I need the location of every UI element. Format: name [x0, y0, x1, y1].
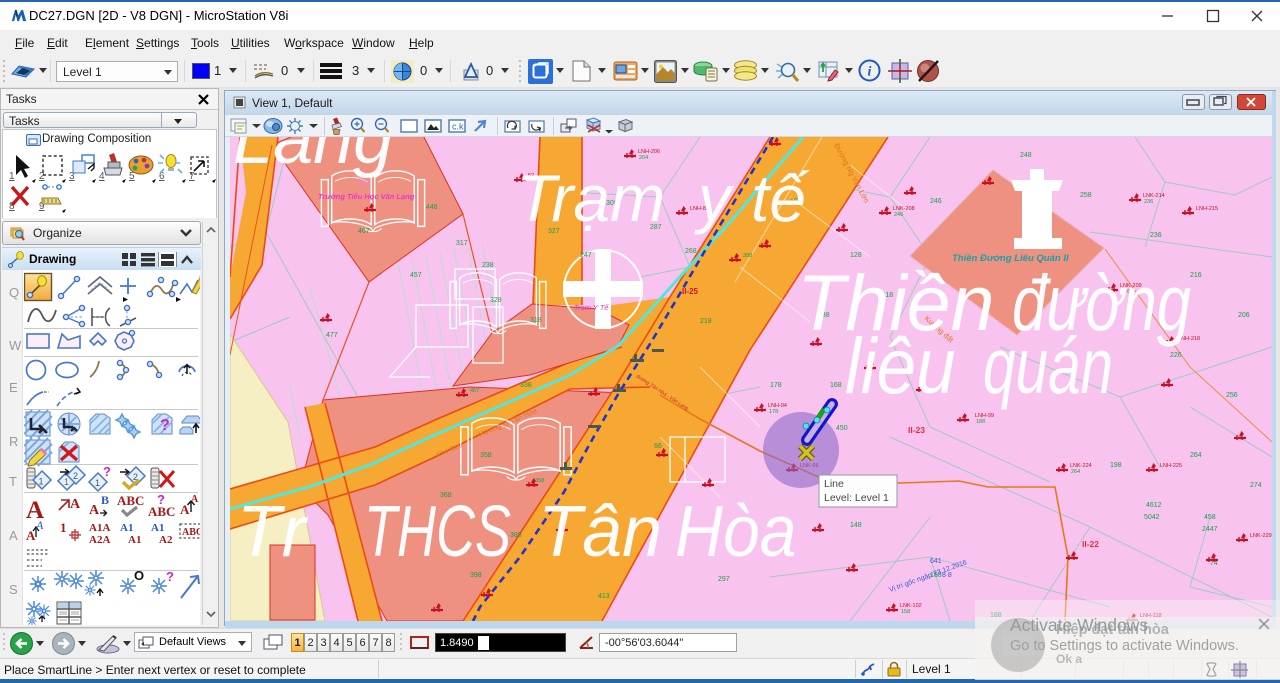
svg-text:318: 318	[530, 317, 542, 324]
svg-text:y: y	[694, 161, 735, 235]
svg-text:A: A	[70, 497, 81, 512]
svg-text:467: 467	[358, 228, 370, 235]
svg-text:A2: A2	[159, 534, 173, 546]
svg-text:218: 218	[700, 318, 712, 325]
svg-text:258: 258	[1080, 192, 1092, 199]
svg-text:Tr: Tr	[237, 492, 312, 572]
svg-text:1: 1	[64, 477, 69, 487]
svg-text:tế: tế	[751, 161, 810, 235]
svg-text:7: 7	[189, 171, 195, 182]
svg-text:THCS: THCS	[364, 492, 511, 572]
svg-text:Trạm: Trạm	[516, 161, 665, 235]
svg-text:Trạm Y Tế: Trạm Y Tế	[574, 303, 609, 312]
svg-text:246: 246	[930, 198, 942, 205]
svg-text:236: 236	[1144, 199, 1153, 205]
svg-text:308: 308	[743, 253, 752, 259]
svg-text:ABC: ABC	[117, 493, 144, 508]
svg-text:?: ?	[157, 492, 165, 507]
svg-text:1: 1	[9, 171, 15, 182]
svg-text:Level: Level 1: Level: Level 1	[824, 492, 889, 504]
svg-text:206: 206	[1238, 312, 1250, 319]
svg-text:LNK-229: LNK-229	[1250, 533, 1272, 539]
svg-text:II-23: II-23	[908, 425, 925, 435]
svg-text:358: 358	[535, 478, 544, 484]
svg-text:liêu: liêu	[845, 322, 956, 410]
svg-text:158: 158	[901, 609, 910, 615]
svg-text:2447: 2447	[1202, 526, 1218, 533]
svg-text:?: ?	[166, 569, 174, 584]
svg-text:A1: A1	[128, 534, 141, 546]
svg-text:264: 264	[1071, 469, 1080, 475]
svg-text:A2A: A2A	[89, 534, 110, 546]
svg-text:477: 477	[326, 332, 338, 339]
svg-text:LNH-225: LNH-225	[1160, 463, 1182, 469]
svg-text:4: 4	[99, 171, 105, 182]
svg-text:198: 198	[1110, 462, 1122, 469]
svg-text:268: 268	[685, 248, 697, 255]
svg-text:274: 274	[1250, 482, 1262, 489]
svg-text:178: 178	[769, 409, 778, 415]
svg-text:i: i	[868, 65, 872, 80]
svg-text:338: 338	[520, 382, 532, 389]
svg-text:448: 448	[426, 204, 438, 211]
svg-text:1: 1	[60, 520, 67, 535]
svg-text:A: A	[191, 494, 199, 505]
svg-text:A1A: A1A	[89, 522, 110, 534]
svg-text:216: 216	[1190, 272, 1202, 279]
svg-text:398: 398	[470, 572, 482, 579]
svg-text:238: 238	[482, 262, 494, 269]
svg-text:226: 226	[1170, 352, 1182, 359]
svg-text:quán: quán	[983, 321, 1113, 410]
svg-text:457: 457	[470, 388, 479, 394]
svg-text:A1: A1	[120, 522, 133, 534]
svg-text:?: ?	[103, 464, 111, 479]
svg-text:A: A	[26, 528, 36, 543]
svg-text:Trường Tiểu Học Vân Lạng: Trường Tiểu Học Vân Lạng	[318, 192, 415, 201]
svg-text:Tân: Tân	[538, 492, 662, 572]
svg-text:148: 148	[850, 522, 862, 529]
svg-text:236: 236	[1150, 232, 1162, 239]
svg-text:66: 66	[654, 443, 662, 450]
svg-text:256: 256	[1226, 392, 1238, 399]
svg-text:Line: Line	[824, 478, 844, 490]
svg-text:450: 450	[836, 425, 848, 432]
svg-text:c.k: c.k	[452, 122, 464, 132]
svg-text:458: 458	[1204, 514, 1216, 521]
svg-text:2: 2	[73, 471, 78, 481]
svg-text:264: 264	[1190, 452, 1202, 459]
svg-text:LNH-215: LNH-215	[1196, 206, 1218, 212]
svg-text:O: O	[134, 568, 144, 583]
svg-text:II-22: II-22	[1082, 539, 1099, 549]
svg-text:641: 641	[930, 558, 942, 565]
svg-text:168: 168	[830, 382, 842, 389]
svg-text:248: 248	[1020, 152, 1032, 159]
svg-text:247: 247	[580, 252, 592, 259]
svg-text:Hòa: Hòa	[675, 490, 796, 571]
svg-text:A: A	[35, 518, 44, 532]
svg-text:188: 188	[976, 419, 985, 425]
svg-text:2: 2	[39, 171, 45, 182]
svg-text:4612: 4612	[1146, 502, 1162, 509]
svg-text:B: B	[101, 493, 109, 507]
svg-text:246: 246	[894, 212, 903, 218]
svg-text:358: 358	[480, 452, 492, 459]
svg-text:328: 328	[490, 297, 502, 304]
svg-text:Vị trí gốc ngập 23.12.2016: Vị trí gốc ngập 23.12.2016	[888, 557, 968, 594]
svg-text:1: 1	[39, 477, 44, 487]
svg-text:388: 388	[510, 532, 522, 539]
svg-text:317: 317	[456, 240, 468, 247]
svg-text:457: 457	[410, 272, 422, 279]
svg-text:297: 297	[718, 576, 730, 583]
svg-text:A: A	[89, 503, 100, 518]
svg-text:ABC: ABC	[182, 527, 200, 538]
svg-text:II-25: II-25	[682, 287, 699, 296]
svg-text:?: ?	[160, 417, 170, 434]
svg-text:178: 178	[770, 382, 782, 389]
svg-text:Làng: Làng	[233, 137, 393, 179]
svg-text:5042: 5042	[1144, 514, 1160, 521]
svg-text:A1: A1	[151, 522, 164, 534]
svg-text:413: 413	[598, 593, 610, 600]
svg-text:1: 1	[95, 478, 100, 488]
